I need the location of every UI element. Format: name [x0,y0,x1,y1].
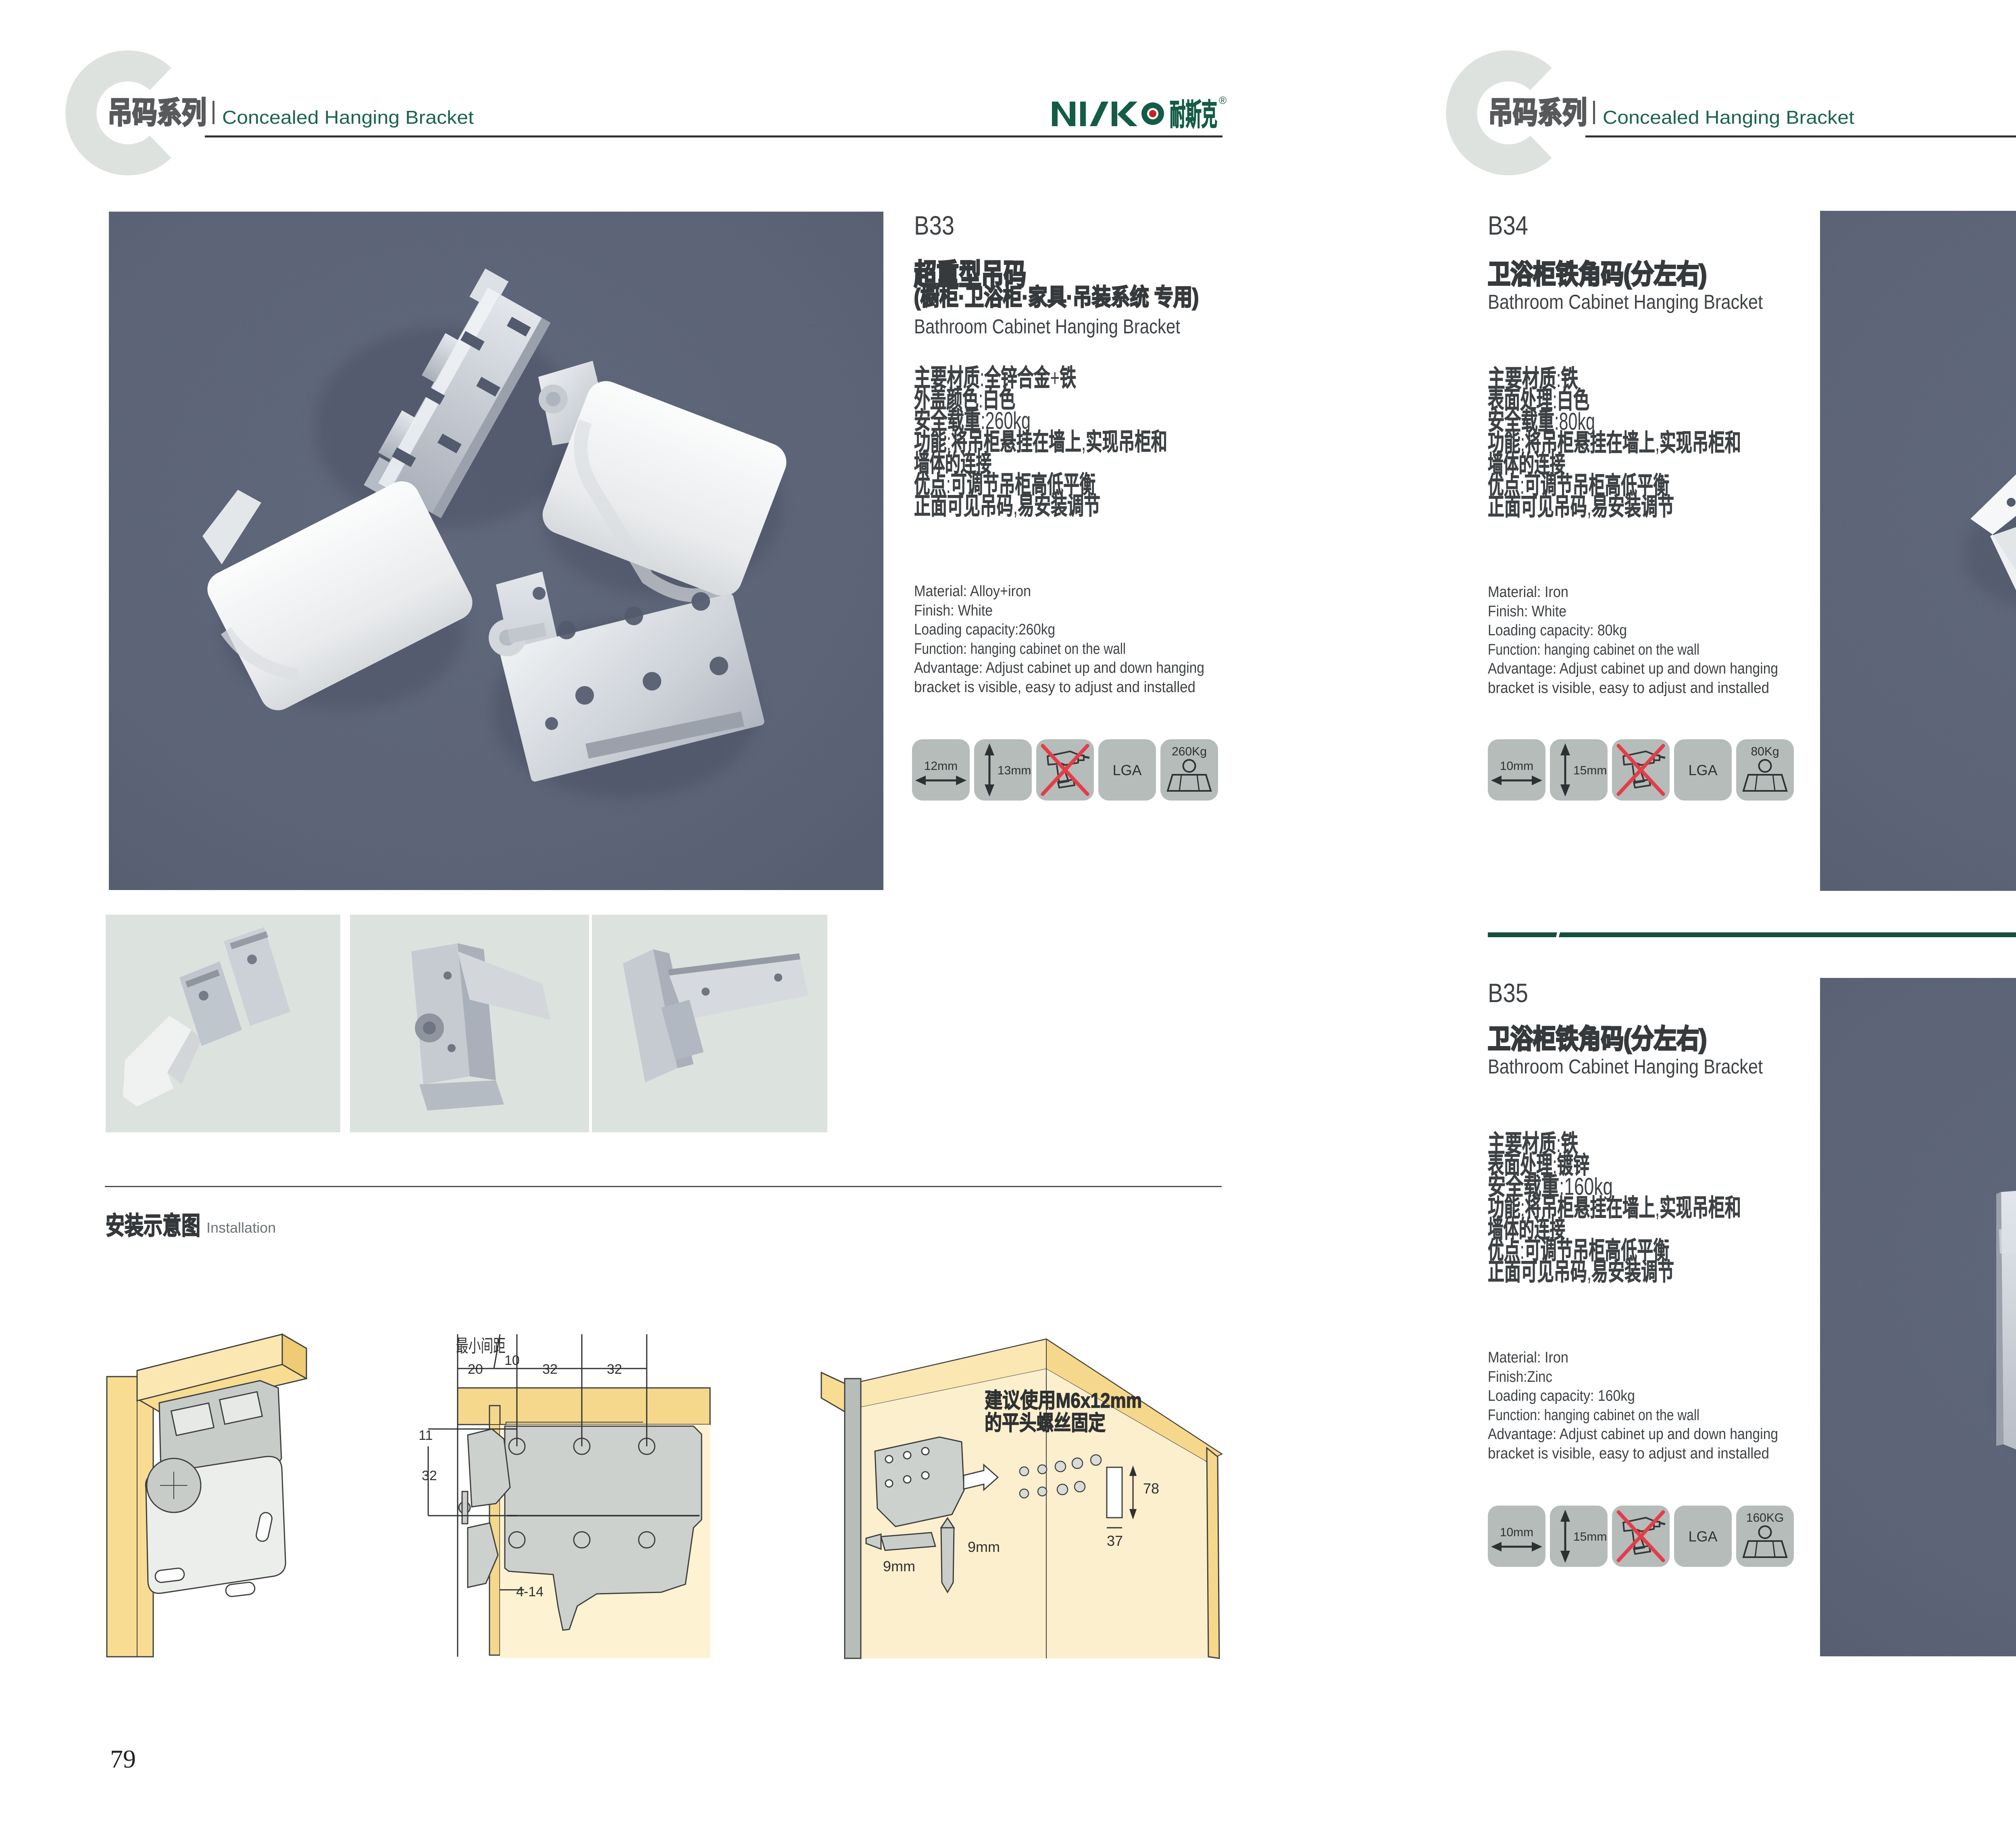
svg-text:Concealed Hanging Bracket: Concealed Hanging Bracket [1603,107,1854,128]
svg-text:13mm: 13mm [998,764,1031,777]
svg-text:20: 20 [468,1362,483,1377]
svg-text:正面可见吊码,易安装调节: 正面可见吊码,易安装调节 [1488,1258,1674,1285]
svg-text:Finish:Zinc: Finish:Zinc [1488,1369,1552,1385]
svg-text:Function: hanging cabinet on t: Function: hanging cabinet on the wall [914,641,1126,657]
svg-text:Installation: Installation [206,1219,276,1236]
svg-text:吊码系列: 吊码系列 [108,96,206,129]
svg-text:Loading capacity: 160kg: Loading capacity: 160kg [1488,1387,1635,1404]
svg-text:LGA: LGA [1688,762,1717,778]
svg-text:12mm: 12mm [924,759,958,773]
svg-text:bracket is visible, easy to ad: bracket is visible, easy to adjust and i… [1488,1445,1769,1462]
svg-text:32: 32 [607,1362,622,1377]
svg-text:Finish: White: Finish: White [914,602,993,619]
svg-text:卫浴柜铁角码(分左右): 卫浴柜铁角码(分左右) [1488,259,1707,289]
svg-text:Function: hanging cabinet on t: Function: hanging cabinet on the wall [1488,1407,1699,1424]
svg-text:Material: Alloy+iron: Material: Alloy+iron [914,583,1031,600]
svg-text:的平头螺丝固定: 的平头螺丝固定 [985,1412,1106,1435]
svg-text:卫浴柜铁角码(分左右): 卫浴柜铁角码(分左右) [1488,1024,1707,1054]
svg-text:B35: B35 [1488,978,1528,1008]
svg-text:10mm: 10mm [1500,759,1533,773]
svg-text:bracket is visible, easy to ad: bracket is visible, easy to adjust and i… [914,679,1195,696]
svg-text:B33: B33 [914,210,954,240]
svg-text:78: 78 [1143,1480,1159,1497]
svg-text:32: 32 [542,1362,558,1377]
svg-text:15mm: 15mm [1573,1530,1607,1543]
svg-text:安装示意图: 安装示意图 [106,1212,200,1240]
svg-text:LGA: LGA [1112,762,1141,778]
svg-text:Concealed Hanging Bracket: Concealed Hanging Bracket [222,107,474,128]
svg-text:建议使用M6x12mm: 建议使用M6x12mm [985,1389,1142,1412]
svg-text:11: 11 [419,1428,433,1443]
svg-text:Material: Iron: Material: Iron [1488,584,1568,601]
svg-text:Advantage: Adjust cabinet up a: Advantage: Adjust cabinet up and down ha… [914,659,1204,676]
svg-text:®: ® [1219,94,1227,106]
svg-text:吊码系列: 吊码系列 [1488,96,1587,129]
svg-text:Finish: White: Finish: White [1488,603,1566,620]
svg-text:B34: B34 [1488,210,1528,240]
svg-text:Bathroom Cabinet Hanging Brack: Bathroom Cabinet Hanging Bracket [914,315,1180,338]
svg-text:(橱柜·卫浴柜·家具·吊装系统 专用): (橱柜·卫浴柜·家具·吊装系统 专用) [914,284,1199,310]
svg-text:79: 79 [110,1745,136,1773]
svg-text:160KG: 160KG [1746,1511,1784,1525]
svg-text:Function: hanging cabinet on t: Function: hanging cabinet on the wall [1488,641,1699,658]
svg-text:15mm: 15mm [1573,764,1607,777]
svg-text:37: 37 [1107,1533,1123,1549]
svg-text:Advantage: Adjust cabinet up a: Advantage: Adjust cabinet up and down ha… [1488,660,1778,677]
svg-text:10mm: 10mm [1500,1526,1533,1539]
svg-text:耐斯克: 耐斯克 [1170,98,1217,131]
svg-text:LGA: LGA [1688,1528,1717,1545]
svg-text:正面可见吊码,易安装调节: 正面可见吊码,易安装调节 [1488,493,1674,520]
svg-text:bracket is visible, easy to ad: bracket is visible, easy to adjust and i… [1488,680,1769,697]
svg-text:80Kg: 80Kg [1751,745,1779,758]
svg-text:9mm: 9mm [968,1539,1000,1555]
svg-text:Loading capacity:260kg: Loading capacity:260kg [914,621,1055,638]
svg-text:正面可见吊码,易安装调节: 正面可见吊码,易安装调节 [914,493,1100,520]
svg-text:Bathroom Cabinet Hanging Brack: Bathroom Cabinet Hanging Bracket [1488,291,1763,313]
svg-text:4-14: 4-14 [516,1584,544,1599]
svg-text:Advantage: Adjust cabinet up a: Advantage: Adjust cabinet up and down ha… [1488,1426,1778,1443]
svg-text:Bathroom Cabinet Hanging Brack: Bathroom Cabinet Hanging Bracket [1488,1055,1763,1078]
svg-text:9mm: 9mm [883,1558,915,1575]
svg-text:Material: Iron: Material: Iron [1488,1349,1568,1366]
svg-text:Loading capacity: 80kg: Loading capacity: 80kg [1488,622,1627,639]
svg-text:260Kg: 260Kg [1172,745,1207,758]
svg-text:32: 32 [422,1468,437,1483]
